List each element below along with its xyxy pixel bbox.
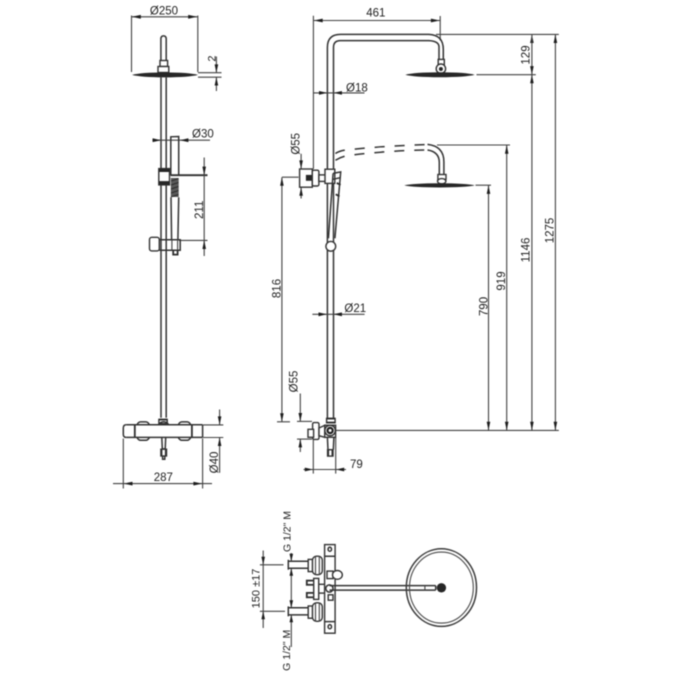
svg-text:1146: 1146 (521, 238, 533, 263)
svg-text:150 ±17: 150 ±17 (250, 569, 262, 609)
svg-text:79: 79 (350, 459, 363, 471)
svg-text:1275: 1275 (545, 218, 557, 244)
svg-text:919: 919 (496, 271, 508, 290)
svg-text:461: 461 (366, 8, 385, 20)
svg-text:G 1/2" M: G 1/2" M (281, 511, 293, 552)
svg-text:129: 129 (521, 45, 533, 64)
svg-text:211: 211 (194, 201, 206, 219)
svg-text:Ø21: Ø21 (344, 303, 366, 315)
svg-text:Ø250: Ø250 (150, 6, 178, 18)
svg-text:790: 790 (479, 297, 491, 316)
svg-text:Ø55: Ø55 (289, 371, 301, 393)
svg-text:Ø30: Ø30 (192, 129, 214, 141)
svg-text:287: 287 (154, 472, 173, 484)
svg-text:2: 2 (206, 56, 218, 62)
svg-text:816: 816 (271, 279, 283, 298)
svg-text:Ø40: Ø40 (209, 452, 221, 474)
svg-text:Ø55: Ø55 (290, 133, 302, 155)
